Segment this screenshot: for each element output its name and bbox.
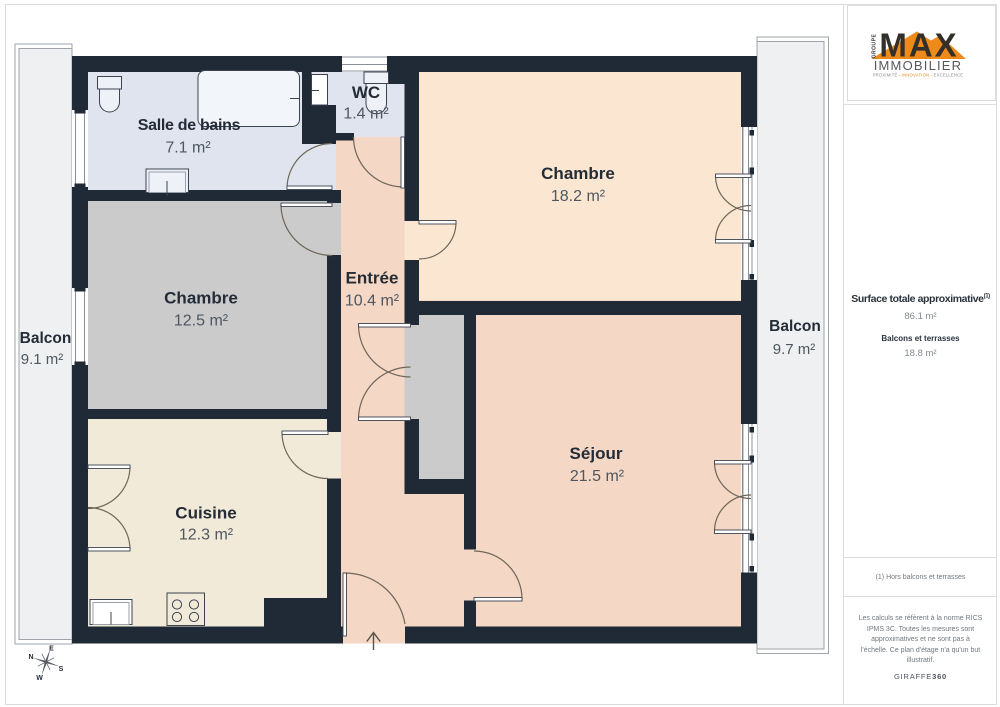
svg-text:W: W [36,675,43,682]
svg-text:12.3 m²: 12.3 m² [179,527,234,544]
svg-text:7.1 m²: 7.1 m² [165,140,211,157]
svg-text:GROUPE: GROUPE [872,34,878,59]
svg-text:N: N [28,654,33,661]
svg-text:18.2 m²: 18.2 m² [551,188,606,205]
svg-text:12.5 m²: 12.5 m² [174,313,229,330]
svg-text:10.4 m²: 10.4 m² [345,293,400,310]
svg-text:Cuisine: Cuisine [175,504,236,523]
svg-text:Entrée: Entrée [346,269,399,288]
svg-text:IMMOBILIER: IMMOBILIER [874,58,963,73]
svg-text:Séjour: Séjour [570,444,623,463]
svg-text:Balcon: Balcon [20,330,72,347]
svg-text:PROXIMITÉ - INNOVATION - EXCEL: PROXIMITÉ - INNOVATION - EXCELLENCE [873,73,964,78]
svg-text:1.4 m²: 1.4 m² [343,106,389,123]
svg-text:Chambre: Chambre [541,164,615,183]
svg-text:21.5 m²: 21.5 m² [570,468,625,485]
svg-text:9.1 m²: 9.1 m² [21,351,64,368]
svg-text:9.7 m²: 9.7 m² [773,341,816,358]
svg-text:S: S [59,666,64,673]
svg-text:E: E [49,646,54,653]
svg-text:Salle de bains: Salle de bains [138,117,241,134]
svg-text:WC: WC [352,83,380,102]
svg-text:Balcon: Balcon [769,318,821,335]
svg-text:Chambre: Chambre [164,289,238,308]
